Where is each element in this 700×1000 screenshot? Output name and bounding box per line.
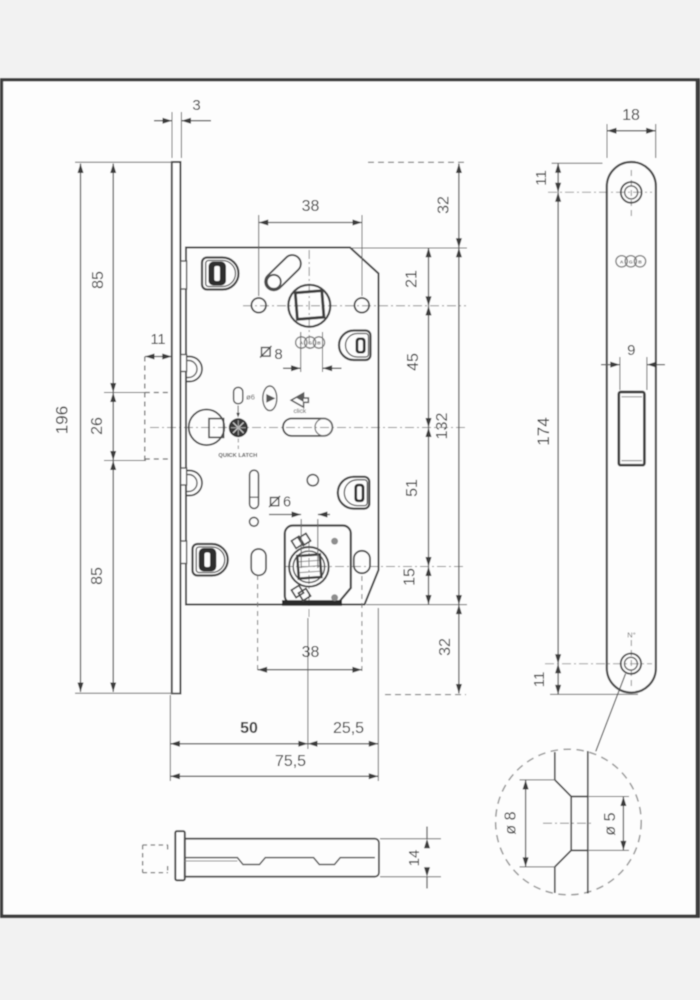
svg-text:14: 14 [406, 850, 423, 867]
svg-text:G: G [308, 341, 312, 347]
svg-text:11: 11 [531, 672, 548, 688]
svg-text:11: 11 [150, 332, 165, 348]
svg-text:26: 26 [89, 417, 106, 435]
svg-text:3: 3 [192, 97, 200, 114]
svg-text:QUICK LATCH: QUICK LATCH [218, 453, 257, 459]
svg-text:6: 6 [283, 495, 291, 511]
svg-text:18: 18 [622, 107, 640, 124]
svg-text:15: 15 [402, 568, 419, 586]
svg-text:174: 174 [534, 417, 553, 445]
svg-text:B: B [638, 260, 642, 266]
svg-text:132: 132 [434, 413, 451, 440]
svg-text:G: G [629, 260, 633, 266]
svg-text:ø6: ø6 [246, 393, 255, 402]
svg-text:ø 5: ø 5 [602, 812, 619, 835]
svg-text:38: 38 [302, 198, 320, 215]
svg-text:38: 38 [302, 644, 320, 661]
svg-text:45: 45 [405, 353, 422, 371]
svg-text:75,5: 75,5 [275, 753, 306, 770]
svg-text:9: 9 [627, 342, 635, 359]
svg-text:A: A [620, 260, 624, 266]
svg-text:85: 85 [90, 271, 107, 289]
svg-text:8: 8 [274, 346, 282, 363]
svg-text:click: click [293, 408, 306, 415]
svg-text:B: B [317, 341, 321, 347]
svg-text:11: 11 [533, 170, 550, 186]
svg-text:A: A [300, 341, 304, 347]
svg-text:N°: N° [627, 631, 635, 640]
svg-text:32: 32 [436, 196, 453, 214]
svg-text:196: 196 [53, 406, 72, 434]
svg-text:32: 32 [437, 638, 454, 656]
svg-text:21: 21 [404, 270, 421, 288]
svg-text:50: 50 [240, 720, 258, 737]
svg-text:85: 85 [89, 567, 106, 585]
svg-text:25,5: 25,5 [333, 720, 364, 737]
svg-text:ø 8: ø 8 [503, 811, 520, 834]
svg-text:51: 51 [404, 479, 421, 497]
